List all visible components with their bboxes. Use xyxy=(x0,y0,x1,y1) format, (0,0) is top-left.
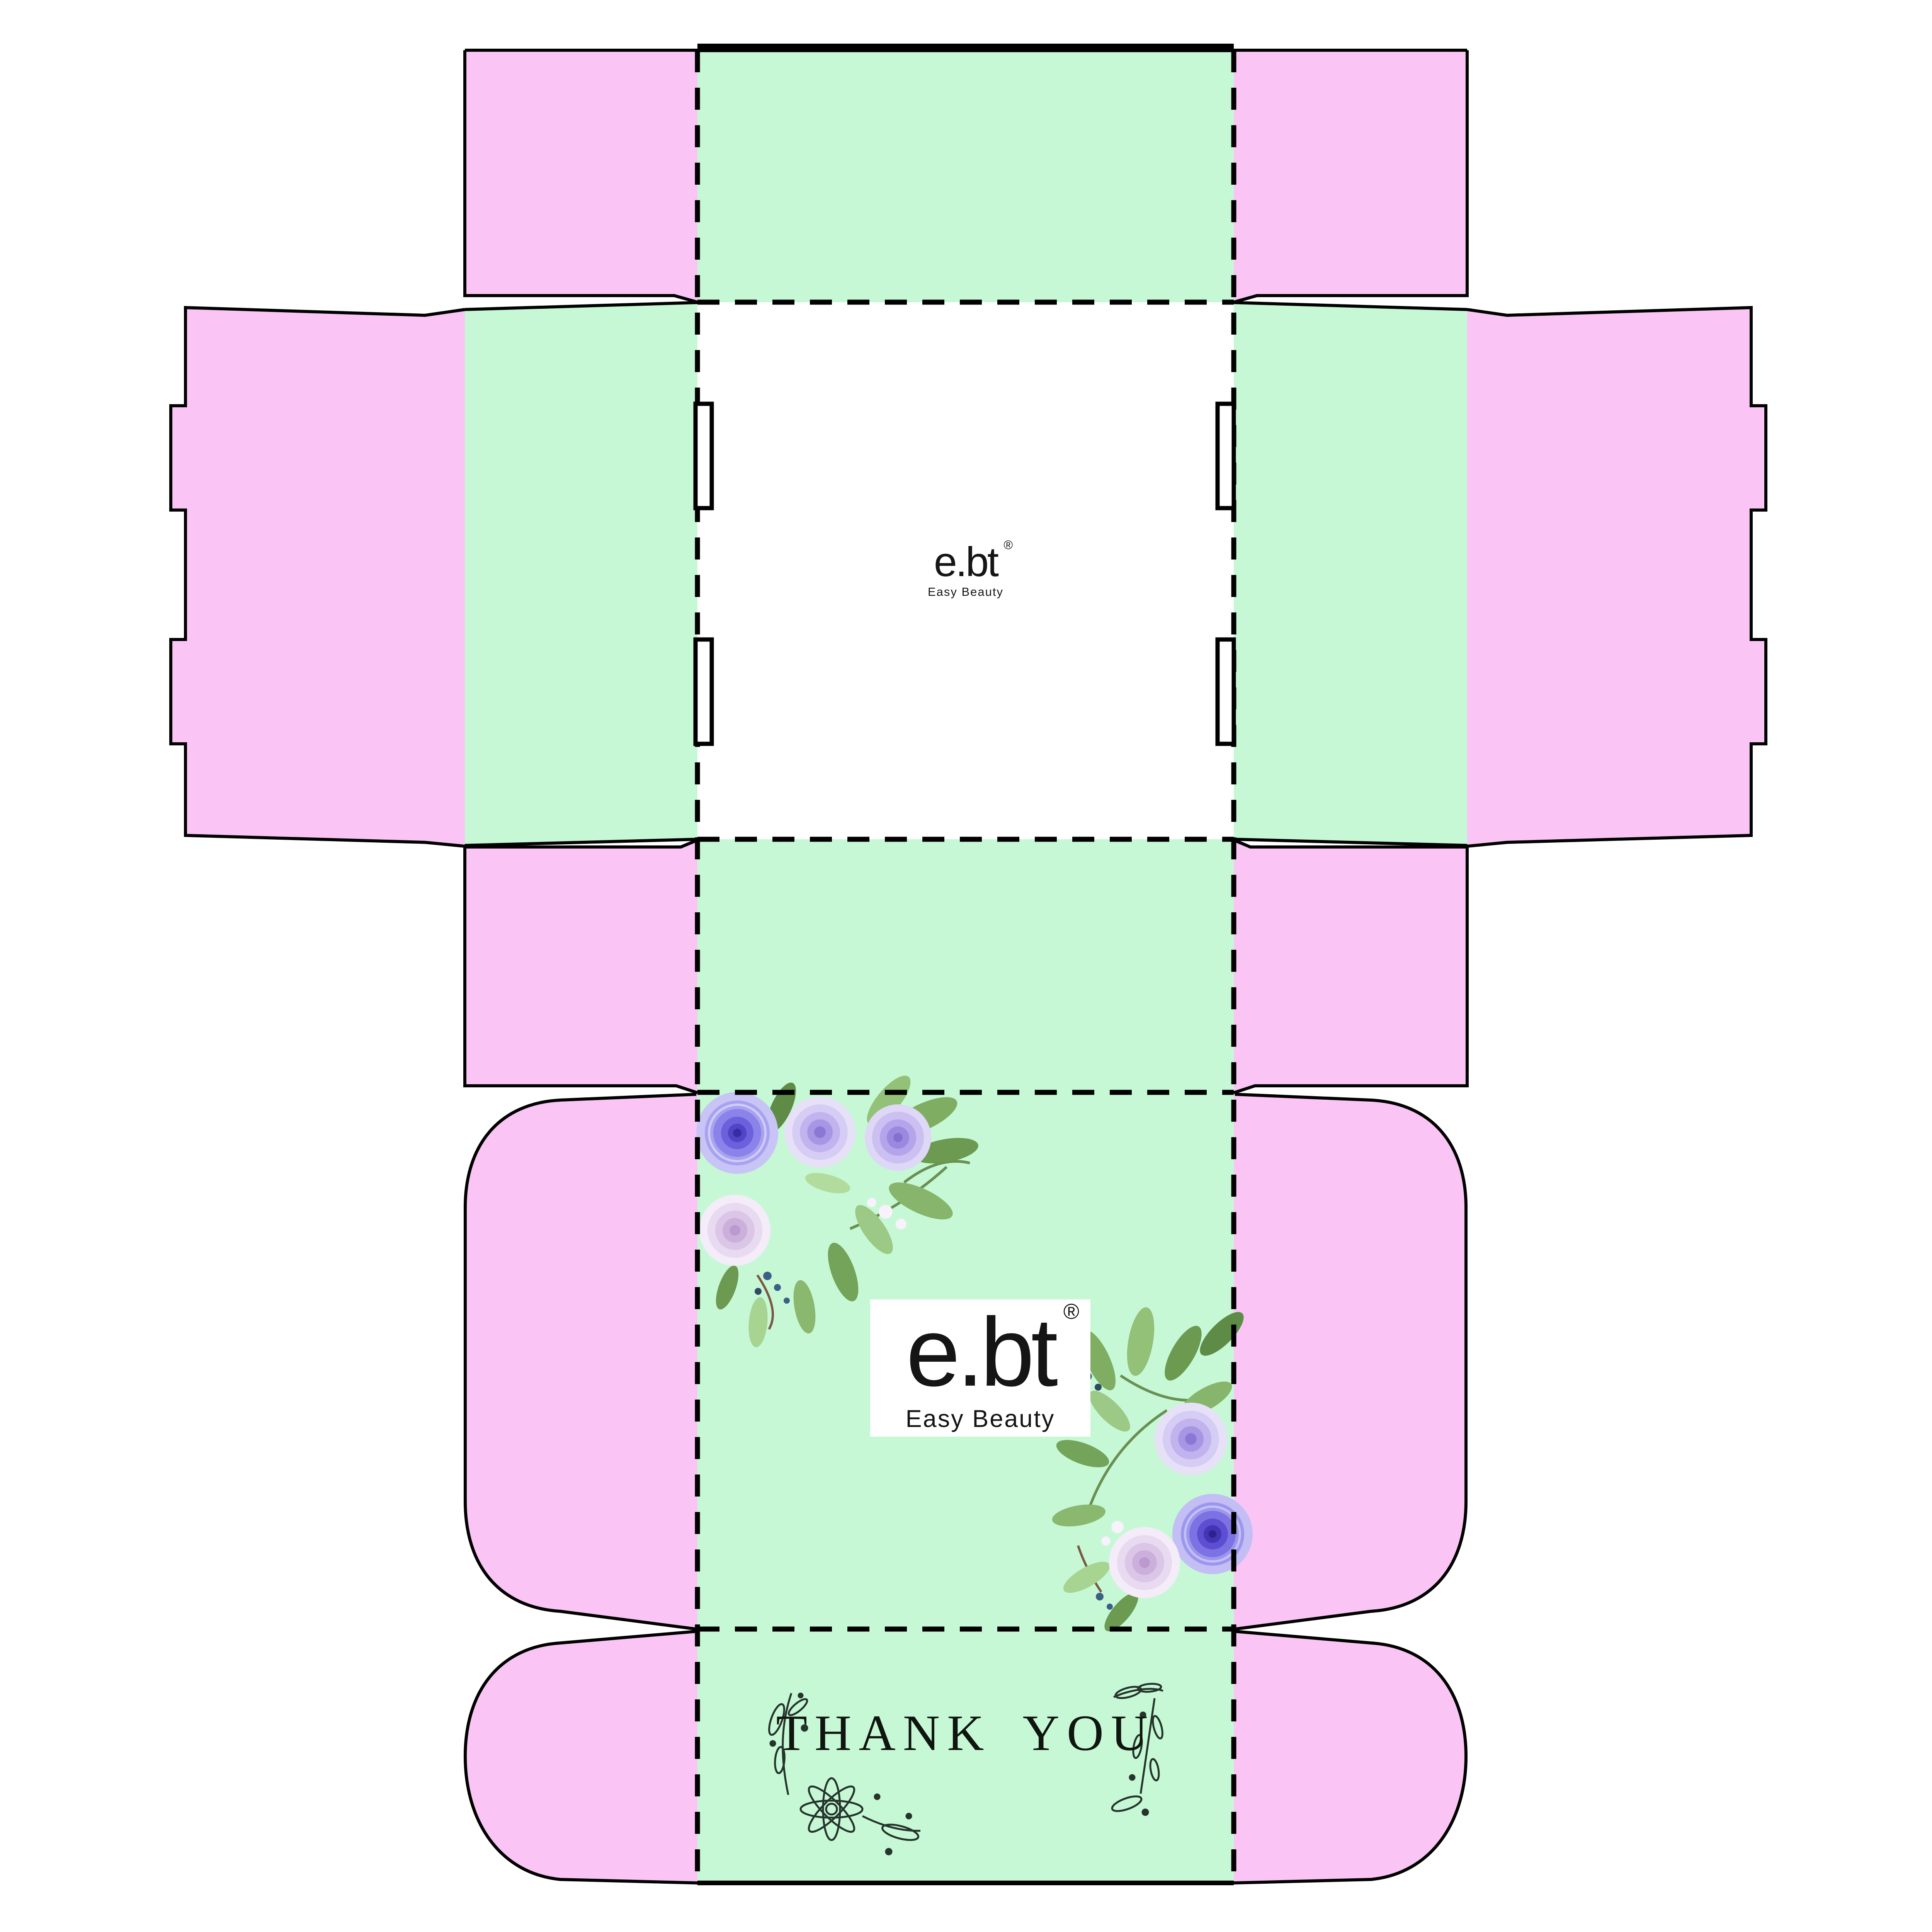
lid-top-flap xyxy=(697,50,1234,302)
thank-you-text: THANK YOU xyxy=(697,1703,1234,1762)
lavender-rose-icon xyxy=(1155,1403,1227,1475)
brand-tagline: Easy Beauty xyxy=(697,585,1234,599)
brand-logo-text: e.bt xyxy=(906,1298,1054,1406)
front-brand-logo: e.bt® Easy Beauty xyxy=(870,1299,1090,1437)
registered-trademark-icon: ® xyxy=(1063,1301,1079,1322)
lock-slot-bottom-right xyxy=(1218,639,1234,744)
dieline-drawing xyxy=(0,0,1932,1932)
back-corner-flap-left xyxy=(465,840,697,1093)
rounded-flap-left-upper xyxy=(465,1094,697,1629)
blush-rose-icon xyxy=(1109,1527,1180,1598)
lilac-rose-icon xyxy=(865,1104,931,1171)
brand-logo-text: e.bt xyxy=(934,538,997,585)
tuck-flap-right xyxy=(1467,308,1766,846)
lid-side-flap-top-left xyxy=(465,50,697,302)
tuck-flap-left xyxy=(171,308,465,846)
registered-trademark-icon: ® xyxy=(1003,539,1013,551)
lavender-rose-icon xyxy=(784,1097,855,1168)
lid-side-panel-left xyxy=(465,303,697,845)
back-panel xyxy=(697,839,1234,1092)
deep-purple-rose-icon xyxy=(1172,1494,1253,1574)
blush-rose-icon xyxy=(699,1195,770,1266)
brand-wordmark: e.bt® xyxy=(906,1304,1054,1401)
lid-side-panel-right xyxy=(1234,303,1467,845)
lock-slot-bottom-left xyxy=(696,639,712,744)
back-corner-flap-right xyxy=(1234,840,1467,1093)
brand-wordmark: e.bt® xyxy=(934,541,997,583)
rounded-flap-right-upper xyxy=(1234,1094,1466,1629)
lid-side-flap-top-right xyxy=(1234,50,1467,302)
lid-brand-logo: e.bt® Easy Beauty xyxy=(697,541,1234,599)
purple-rose-icon xyxy=(696,1092,778,1174)
brand-tagline: Easy Beauty xyxy=(906,1405,1055,1433)
lock-slot-top-left xyxy=(696,404,712,508)
lock-slot-top-right xyxy=(1218,404,1234,508)
box-dieline-canvas: e.bt® Easy Beauty e.bt® Easy Beauty THAN… xyxy=(0,0,1932,1932)
